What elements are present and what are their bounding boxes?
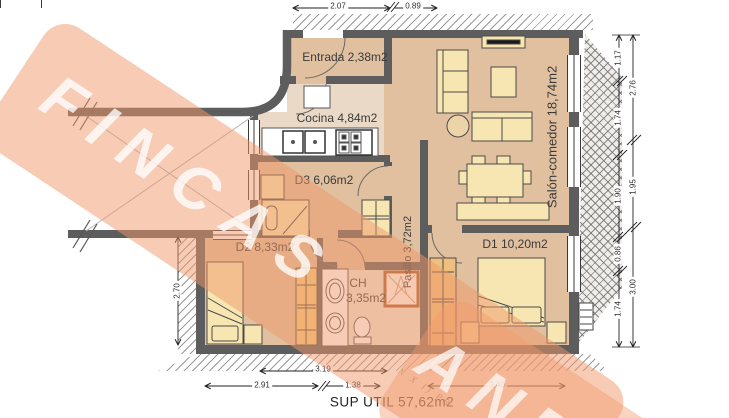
desk-d3 [261,175,284,199]
furniture-salon [437,36,549,220]
pillow [212,326,238,341]
dim-left-1: 2.70 [173,281,182,301]
armchair [491,67,516,97]
side-table-d2 [244,325,262,344]
sofa-three-seat [437,50,468,113]
tv-screen [487,40,520,44]
patio-cross [86,116,253,231]
room-label-entrada: Entrada 2,38m2 [302,50,387,64]
sideboard [457,203,549,220]
dim-right-inner-4: 0.86 [614,244,623,264]
dim-bottom-2: 1.38 [343,381,363,390]
dim-right-inner-1: 1.17 [614,48,623,68]
dining-chair [497,156,510,164]
pillow [266,206,277,230]
dining-chair [472,156,485,164]
dining-chair [459,171,467,184]
room-label-pasillo: Pasillo 3,72m2 [402,216,414,288]
dim-right-outer-3: 3.00 [629,277,638,297]
door-d2 [310,238,338,266]
dim-right-inner-2: 1.74 [614,108,623,128]
room-label-cocina: Cocina 4,84m2 [297,111,378,125]
dim-right-outer-1: 2.76 [629,78,638,98]
dining-table [467,164,523,197]
toilet [354,317,370,337]
dim-bottom-3: 3.40 [487,381,507,390]
dim-right-inner-5: 1.74 [614,299,623,319]
wall-curved-corridor [68,30,287,112]
dim-top-1: 2.07 [328,2,348,11]
dim-bottom-upper-1: 3.19 [313,365,333,374]
room-label-d2: D2 8,33m2 [236,240,295,254]
room-label-ch: CH [349,276,366,290]
dim-bottom-1: 2.91 [252,381,272,390]
room-label-ch-area: 3,35m2 [346,291,386,305]
door-ch [337,240,365,268]
total-area-label: SUP UTIL 57,62m2 [330,395,454,410]
furniture-d2 [207,262,317,345]
furniture-d1 [430,258,566,346]
door-d3 [358,166,388,196]
radiator [579,303,593,330]
pillow [512,307,541,323]
side-table-round [447,115,469,137]
fridge [304,86,330,108]
room-label-d1: D1 10,20m2 [482,237,547,251]
dim-top-2: 0.89 [403,2,423,11]
floor-plan: Entrada 2,38m2 Cocina 4,84m2 Salón-comed… [0,0,729,418]
nightstand [547,322,566,343]
room-label-d3: D3 6,06m2 [295,173,354,187]
toilet-tank [354,337,371,344]
dining-chair [523,171,531,184]
dim-right-inner-3: 1.90 [614,186,623,206]
dim-right-outer-2: 1.95 [629,177,638,197]
nightstand [461,322,479,343]
pillow [481,307,509,323]
room-label-salon: Salón-comedor 18,74m2 [545,66,560,208]
